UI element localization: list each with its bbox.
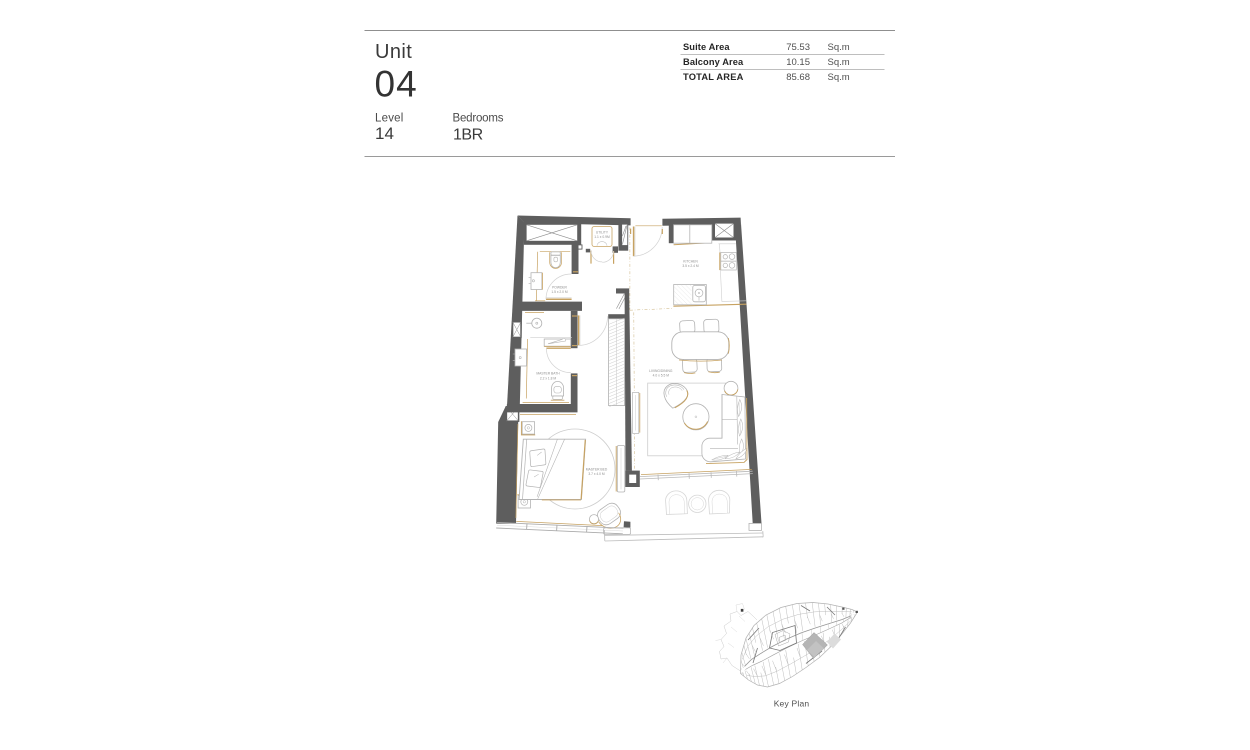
svg-text:Key Plan: Key Plan	[774, 699, 810, 709]
svg-text:LIVING/DINING: LIVING/DINING	[649, 369, 673, 373]
svg-text:TOTAL AREA: TOTAL AREA	[683, 72, 744, 82]
svg-text:3.7 x 4.0 M: 3.7 x 4.0 M	[588, 472, 605, 476]
svg-text:85.68: 85.68	[786, 72, 810, 83]
svg-text:Suite Area: Suite Area	[683, 42, 730, 52]
svg-text:3.5 x 2.4 M: 3.5 x 2.4 M	[682, 264, 699, 268]
svg-text:75.53: 75.53	[786, 42, 810, 53]
svg-text:POWDER: POWDER	[552, 286, 567, 290]
svg-text:MASTER BATH: MASTER BATH	[536, 372, 560, 376]
svg-text:Bedrooms: Bedrooms	[453, 113, 504, 125]
svg-text:1.1 x 0.9M: 1.1 x 0.9M	[594, 235, 610, 239]
svg-text:14: 14	[375, 124, 394, 143]
svg-text:KITCHEN: KITCHEN	[683, 260, 698, 264]
svg-text:Level: Level	[375, 113, 404, 125]
svg-text:1.5 x 2.0 M: 1.5 x 2.0 M	[551, 290, 568, 294]
svg-text:Unit: Unit	[375, 41, 412, 63]
svg-text:1BR: 1BR	[453, 127, 483, 144]
svg-text:4.0 x 5.5 M: 4.0 x 5.5 M	[653, 374, 670, 378]
svg-text:Sq.m: Sq.m	[828, 42, 850, 53]
svg-text:Sq.m: Sq.m	[828, 57, 850, 68]
svg-text:04: 04	[375, 64, 418, 105]
svg-text:UTILITY: UTILITY	[596, 231, 609, 235]
svg-text:Sq.m: Sq.m	[828, 72, 850, 83]
svg-text:10.15: 10.15	[786, 57, 810, 68]
svg-text:2.2 x 1.8 M: 2.2 x 1.8 M	[540, 376, 557, 380]
svg-text:Balcony Area: Balcony Area	[683, 57, 744, 67]
svg-text:MASTER BED: MASTER BED	[586, 467, 608, 471]
